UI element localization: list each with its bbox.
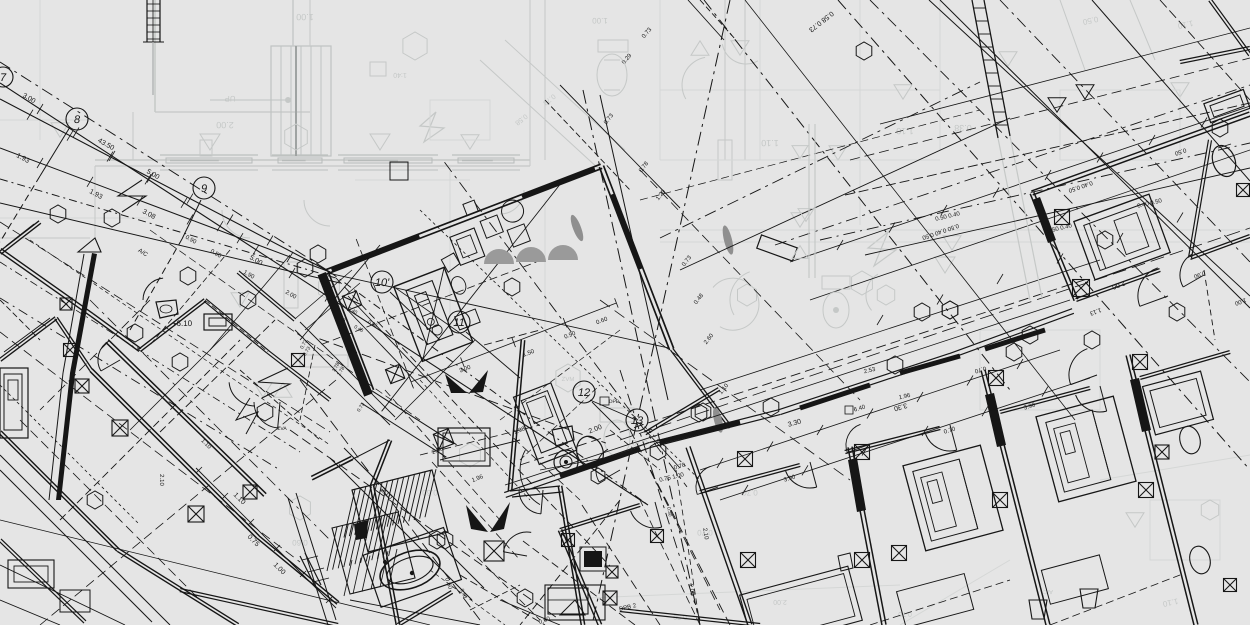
svg-text:0.70: 0.70 (742, 488, 758, 497)
svg-text:0.38: 0.38 (954, 123, 972, 133)
svg-text:9: 9 (201, 183, 207, 195)
svg-text:2.00: 2.00 (216, 120, 234, 130)
svg-text:1:40: 1:40 (393, 71, 407, 78)
svg-text:ZVA: ZVA (277, 426, 287, 432)
svg-text:DPB: DPB (609, 399, 620, 405)
svg-text:1.10: 1.10 (761, 138, 779, 148)
svg-text:2.00: 2.00 (773, 598, 787, 605)
svg-text:8: 8 (74, 114, 81, 126)
svg-text:ZVM: ZVM (562, 376, 575, 383)
svg-text:7: 7 (0, 72, 7, 84)
svg-text:1.00: 1.00 (592, 16, 608, 25)
svg-text:+6.10: +6.10 (172, 319, 193, 328)
svg-text:11: 11 (453, 317, 464, 329)
svg-text:12: 12 (578, 387, 590, 399)
svg-text:2.10: 2.10 (158, 474, 165, 486)
svg-text:10': 10' (375, 277, 390, 289)
svg-text:1.00: 1.00 (296, 12, 314, 22)
svg-text:1.10: 1.10 (896, 126, 914, 136)
svg-text:UP: UP (224, 94, 235, 103)
svg-text:0.60: 0.60 (292, 538, 308, 547)
